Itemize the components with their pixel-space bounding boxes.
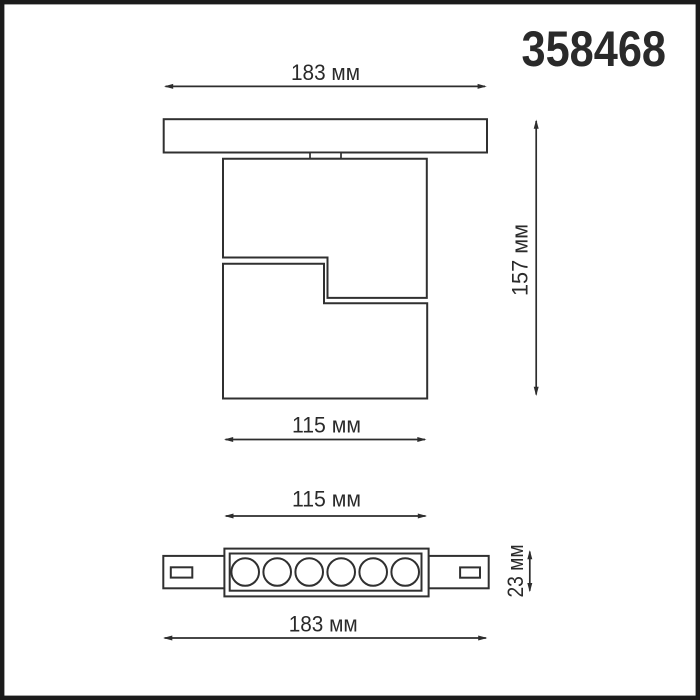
svg-text:358468: 358468	[522, 21, 667, 77]
svg-text:115 мм: 115 мм	[292, 486, 361, 511]
svg-text:115 мм: 115 мм	[292, 413, 361, 438]
svg-text:183 мм: 183 мм	[291, 60, 360, 85]
svg-text:183 мм: 183 мм	[289, 611, 358, 636]
svg-text:157 мм: 157 мм	[508, 224, 533, 296]
svg-text:23 мм: 23 мм	[503, 545, 528, 598]
